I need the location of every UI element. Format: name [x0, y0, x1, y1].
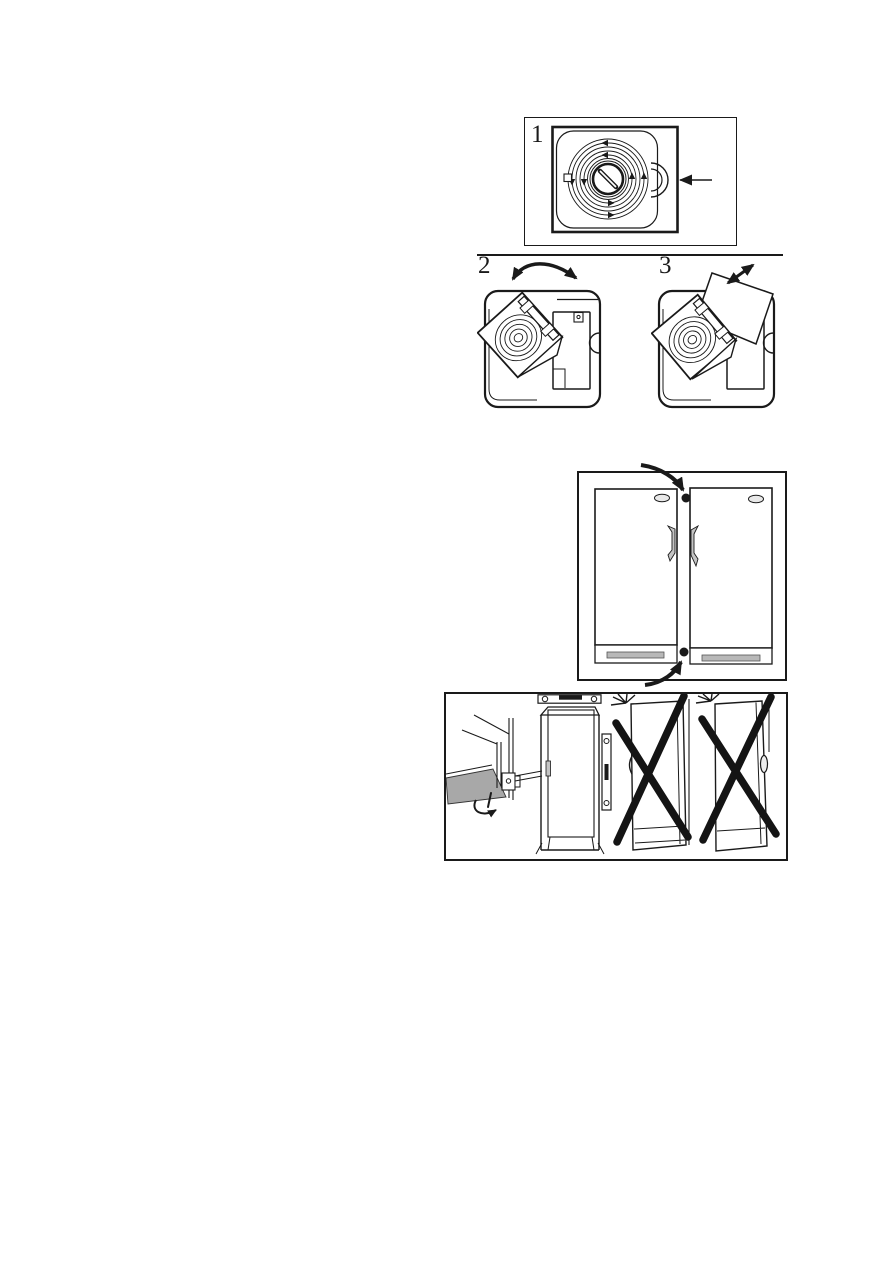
wrong-mounting-scene-1: [611, 694, 689, 850]
wrong-mounting-scene-2: [696, 694, 776, 851]
installation-figure-panel: [444, 692, 788, 861]
cover-panel: [478, 293, 563, 378]
manual-page: 1: [0, 0, 893, 1263]
correct-mounting-scene: [536, 695, 611, 854]
bottom-spacer-dot: [680, 648, 689, 657]
cover-swing-illustration: [477, 251, 607, 411]
side-by-side-cabinets-illustration: [579, 473, 785, 679]
swing-arrow: [513, 264, 576, 279]
right-cabinet: [690, 488, 772, 664]
clearance-figure-panel: [577, 471, 787, 681]
pull-arrow: [728, 265, 753, 283]
coil-cover-illustration: [525, 118, 735, 244]
top-spacer-arrow: [641, 465, 683, 490]
top-spacer-dot: [682, 494, 691, 503]
base-bracket-detail: [446, 715, 542, 813]
installation-warning-illustration: [446, 694, 786, 859]
adjust-arrow: [474, 800, 496, 813]
cover-remove-illustration: [651, 251, 786, 411]
left-cabinet: [595, 489, 677, 663]
impact-starburst: [696, 694, 719, 703]
bottom-spacer-arrow: [645, 662, 681, 685]
figure-1-panel: 1: [524, 117, 737, 246]
